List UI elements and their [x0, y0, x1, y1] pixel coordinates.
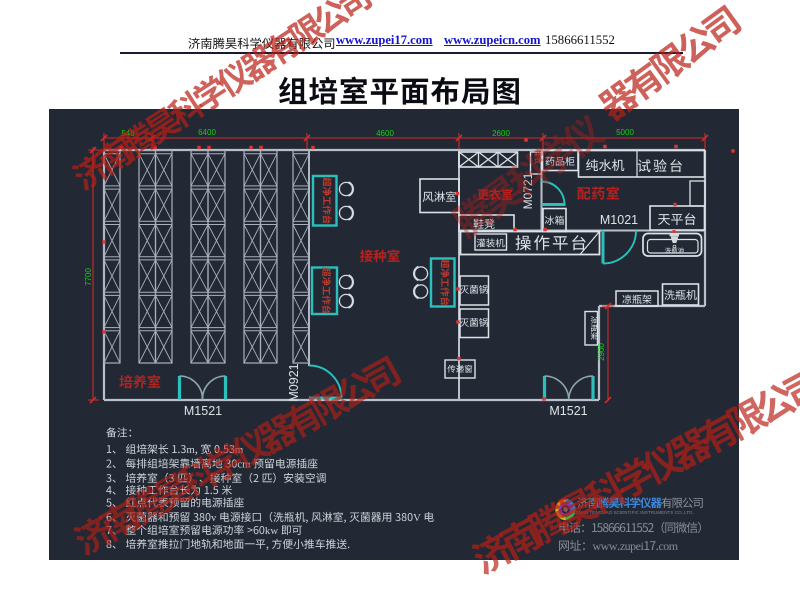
- svg-text:腾昊科学仪器: 腾昊科学仪器: [598, 495, 662, 511]
- svg-text:8、 培养室推拉门地轨和地面一平, 方便小推车推送.: 8、 培养室推拉门地轨和地面一平, 方便小推车推送.: [106, 536, 350, 552]
- svg-text:4600: 4600: [376, 129, 394, 138]
- svg-text:灌装机: 灌装机: [476, 236, 505, 250]
- svg-text:2900: 2900: [597, 343, 606, 361]
- svg-text:洗瓶池: 洗瓶池: [665, 245, 685, 255]
- svg-text:1、 组培架长 1.3m, 宽 0.53m: 1、 组培架长 1.3m, 宽 0.53m: [106, 441, 244, 457]
- svg-text:更衣室: 更衣室: [477, 186, 513, 203]
- svg-text:M1521: M1521: [549, 404, 587, 418]
- svg-text:接种室: 接种室: [360, 245, 401, 265]
- svg-text:548: 548: [121, 129, 135, 138]
- svg-text:济南: 济南: [577, 495, 598, 511]
- svg-text:天平台: 天平台: [657, 209, 696, 228]
- svg-text:6400: 6400: [198, 128, 216, 137]
- svg-text:风淋室: 风淋室: [422, 189, 457, 205]
- svg-text:凉瓶架: 凉瓶架: [622, 291, 652, 306]
- svg-text:备注：: 备注：: [106, 425, 138, 441]
- svg-text:JINAN TENGHAO SCIENTIFIC INSTR: JINAN TENGHAO SCIENTIFIC INSTRUMENTS CO.…: [575, 510, 694, 515]
- svg-text:培养室: 培养室: [119, 372, 161, 392]
- svg-text:M0721: M0721: [521, 172, 535, 209]
- svg-text:配药室: 配药室: [577, 184, 621, 204]
- svg-text:超净工作台: 超净工作台: [438, 259, 452, 306]
- svg-text:2、 每排组培架靠墙离地 30cm 预留电源插座: 2、 每排组培架靠墙离地 30cm 预留电源插座: [106, 455, 318, 471]
- svg-text:冰箱: 冰箱: [545, 212, 565, 227]
- svg-text:操作平台: 操作平台: [515, 230, 589, 254]
- svg-text:凉瓶架: 凉瓶架: [589, 316, 600, 340]
- svg-text:纯水机: 纯水机: [585, 155, 624, 174]
- svg-text:超净工作台: 超净工作台: [320, 267, 334, 314]
- svg-text:试验台: 试验台: [637, 156, 685, 176]
- svg-text:电话：15866611552（同微信）: 电话：15866611552（同微信）: [558, 519, 708, 536]
- svg-text:2600: 2600: [492, 129, 510, 138]
- svg-text:鞋凳: 鞋凳: [473, 216, 495, 232]
- svg-text:网址：www.zupei17.com: 网址：www.zupei17.com: [558, 537, 679, 554]
- svg-text:灭菌锅: 灭菌锅: [460, 315, 489, 329]
- svg-text:挂衣: 挂衣: [532, 150, 542, 164]
- svg-text:7700: 7700: [84, 268, 93, 286]
- svg-text:5000: 5000: [616, 128, 634, 137]
- svg-text:M0921: M0921: [287, 363, 301, 401]
- svg-text:灭菌锅: 灭菌锅: [460, 282, 489, 296]
- svg-text:传递窗: 传递窗: [447, 363, 473, 375]
- svg-text:5、 红点代表预留的电源插座: 5、 红点代表预留的电源插座: [106, 494, 244, 510]
- svg-text:M1021: M1021: [600, 213, 638, 227]
- svg-text:洗瓶机: 洗瓶机: [664, 287, 697, 303]
- svg-text:药品柜: 药品柜: [545, 153, 575, 168]
- svg-text:M1521: M1521: [184, 404, 222, 418]
- svg-text:有限公司: 有限公司: [661, 495, 703, 511]
- svg-text:超净工作台: 超净工作台: [320, 177, 334, 224]
